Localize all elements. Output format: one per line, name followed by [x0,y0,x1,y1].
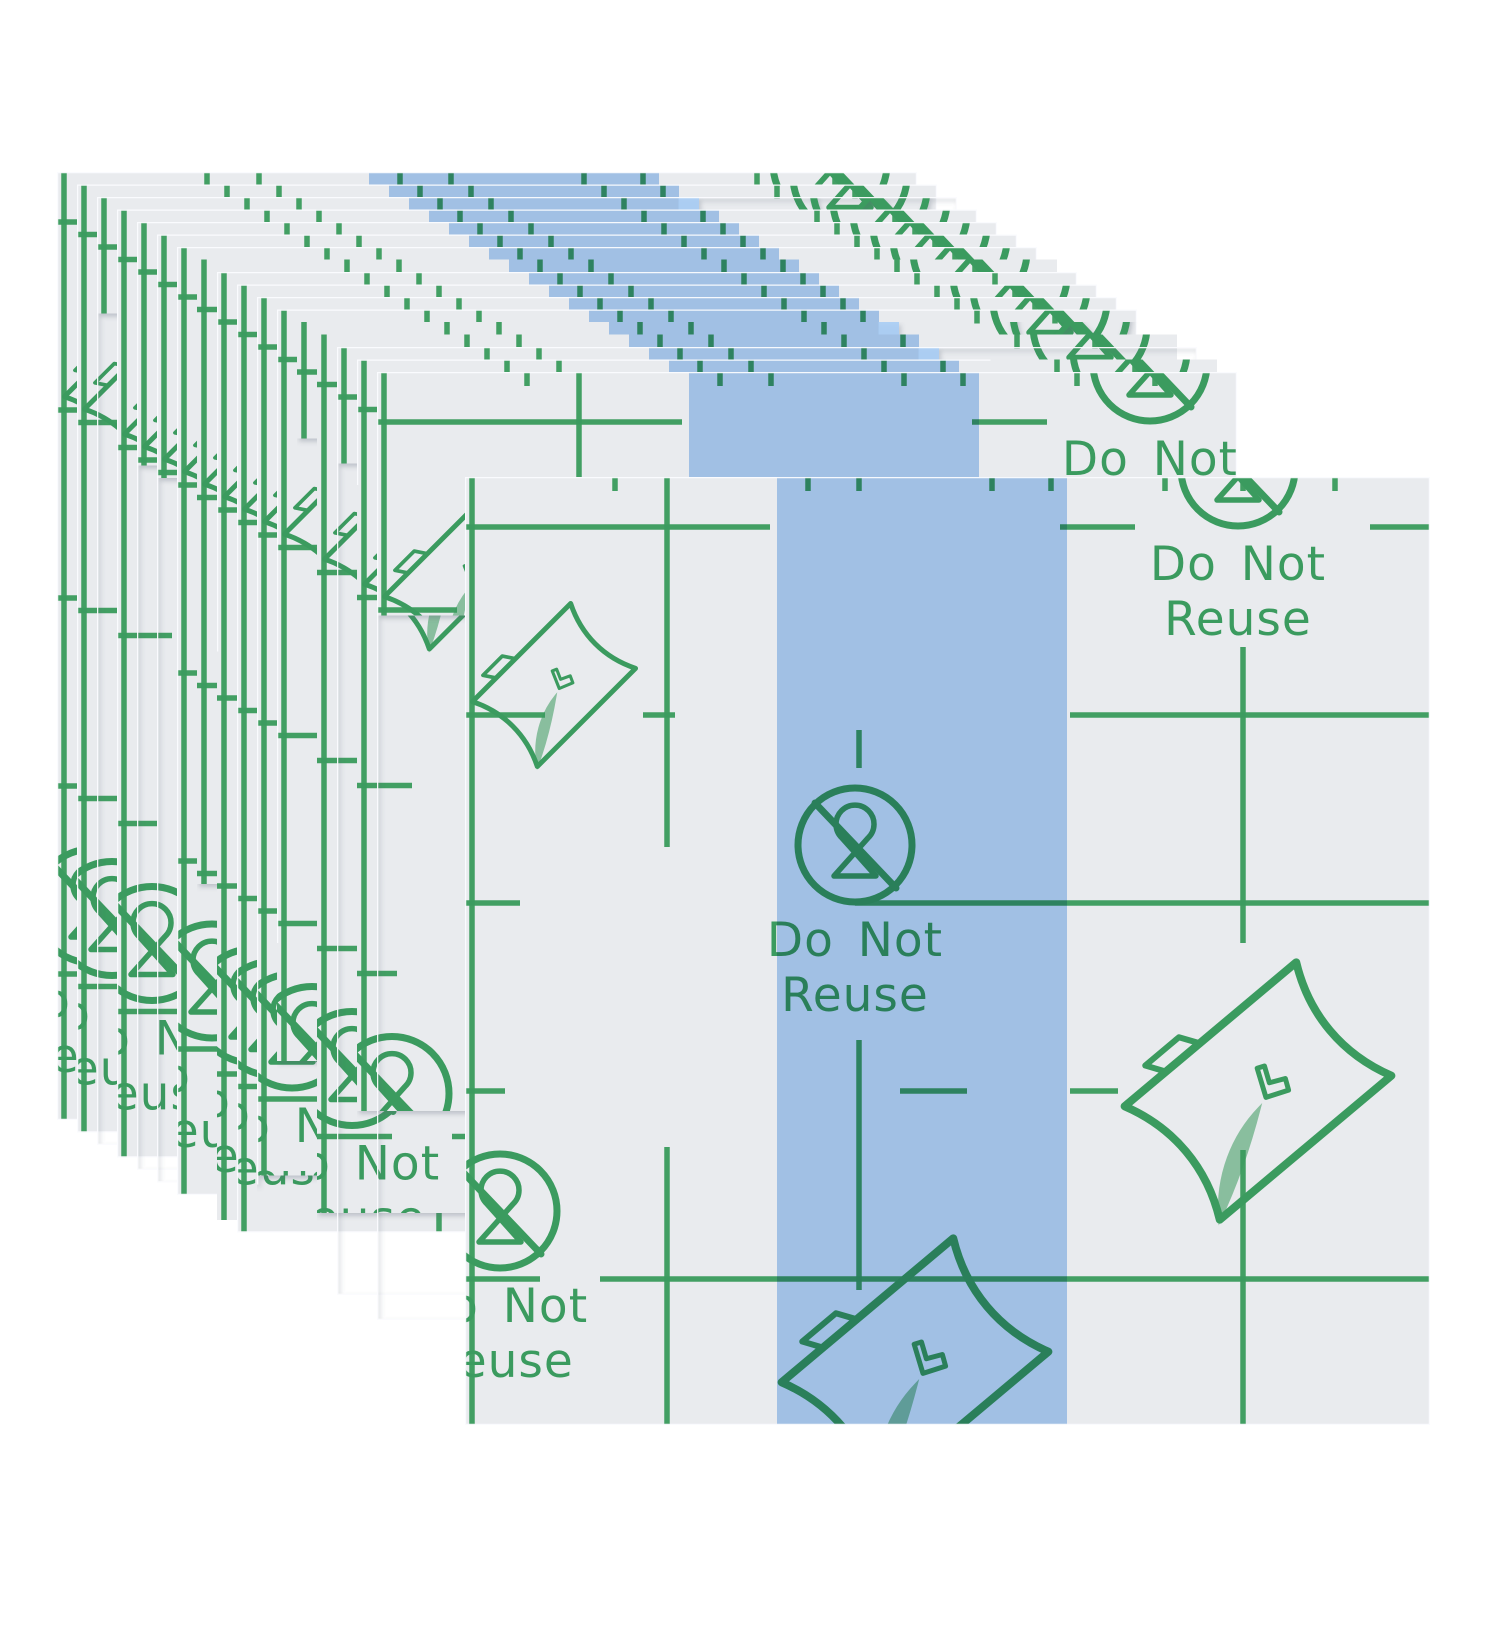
product-photo: Do Not Reuse Do Not Reuse Do Not Reuse [0,0,1500,1650]
sheet-stack-layer [4,107,1430,1496]
front-sheet [412,412,1430,1496]
product-photo-canvas: Do Not Reuse Do Not Reuse Do Not Reuse [0,0,1500,1650]
